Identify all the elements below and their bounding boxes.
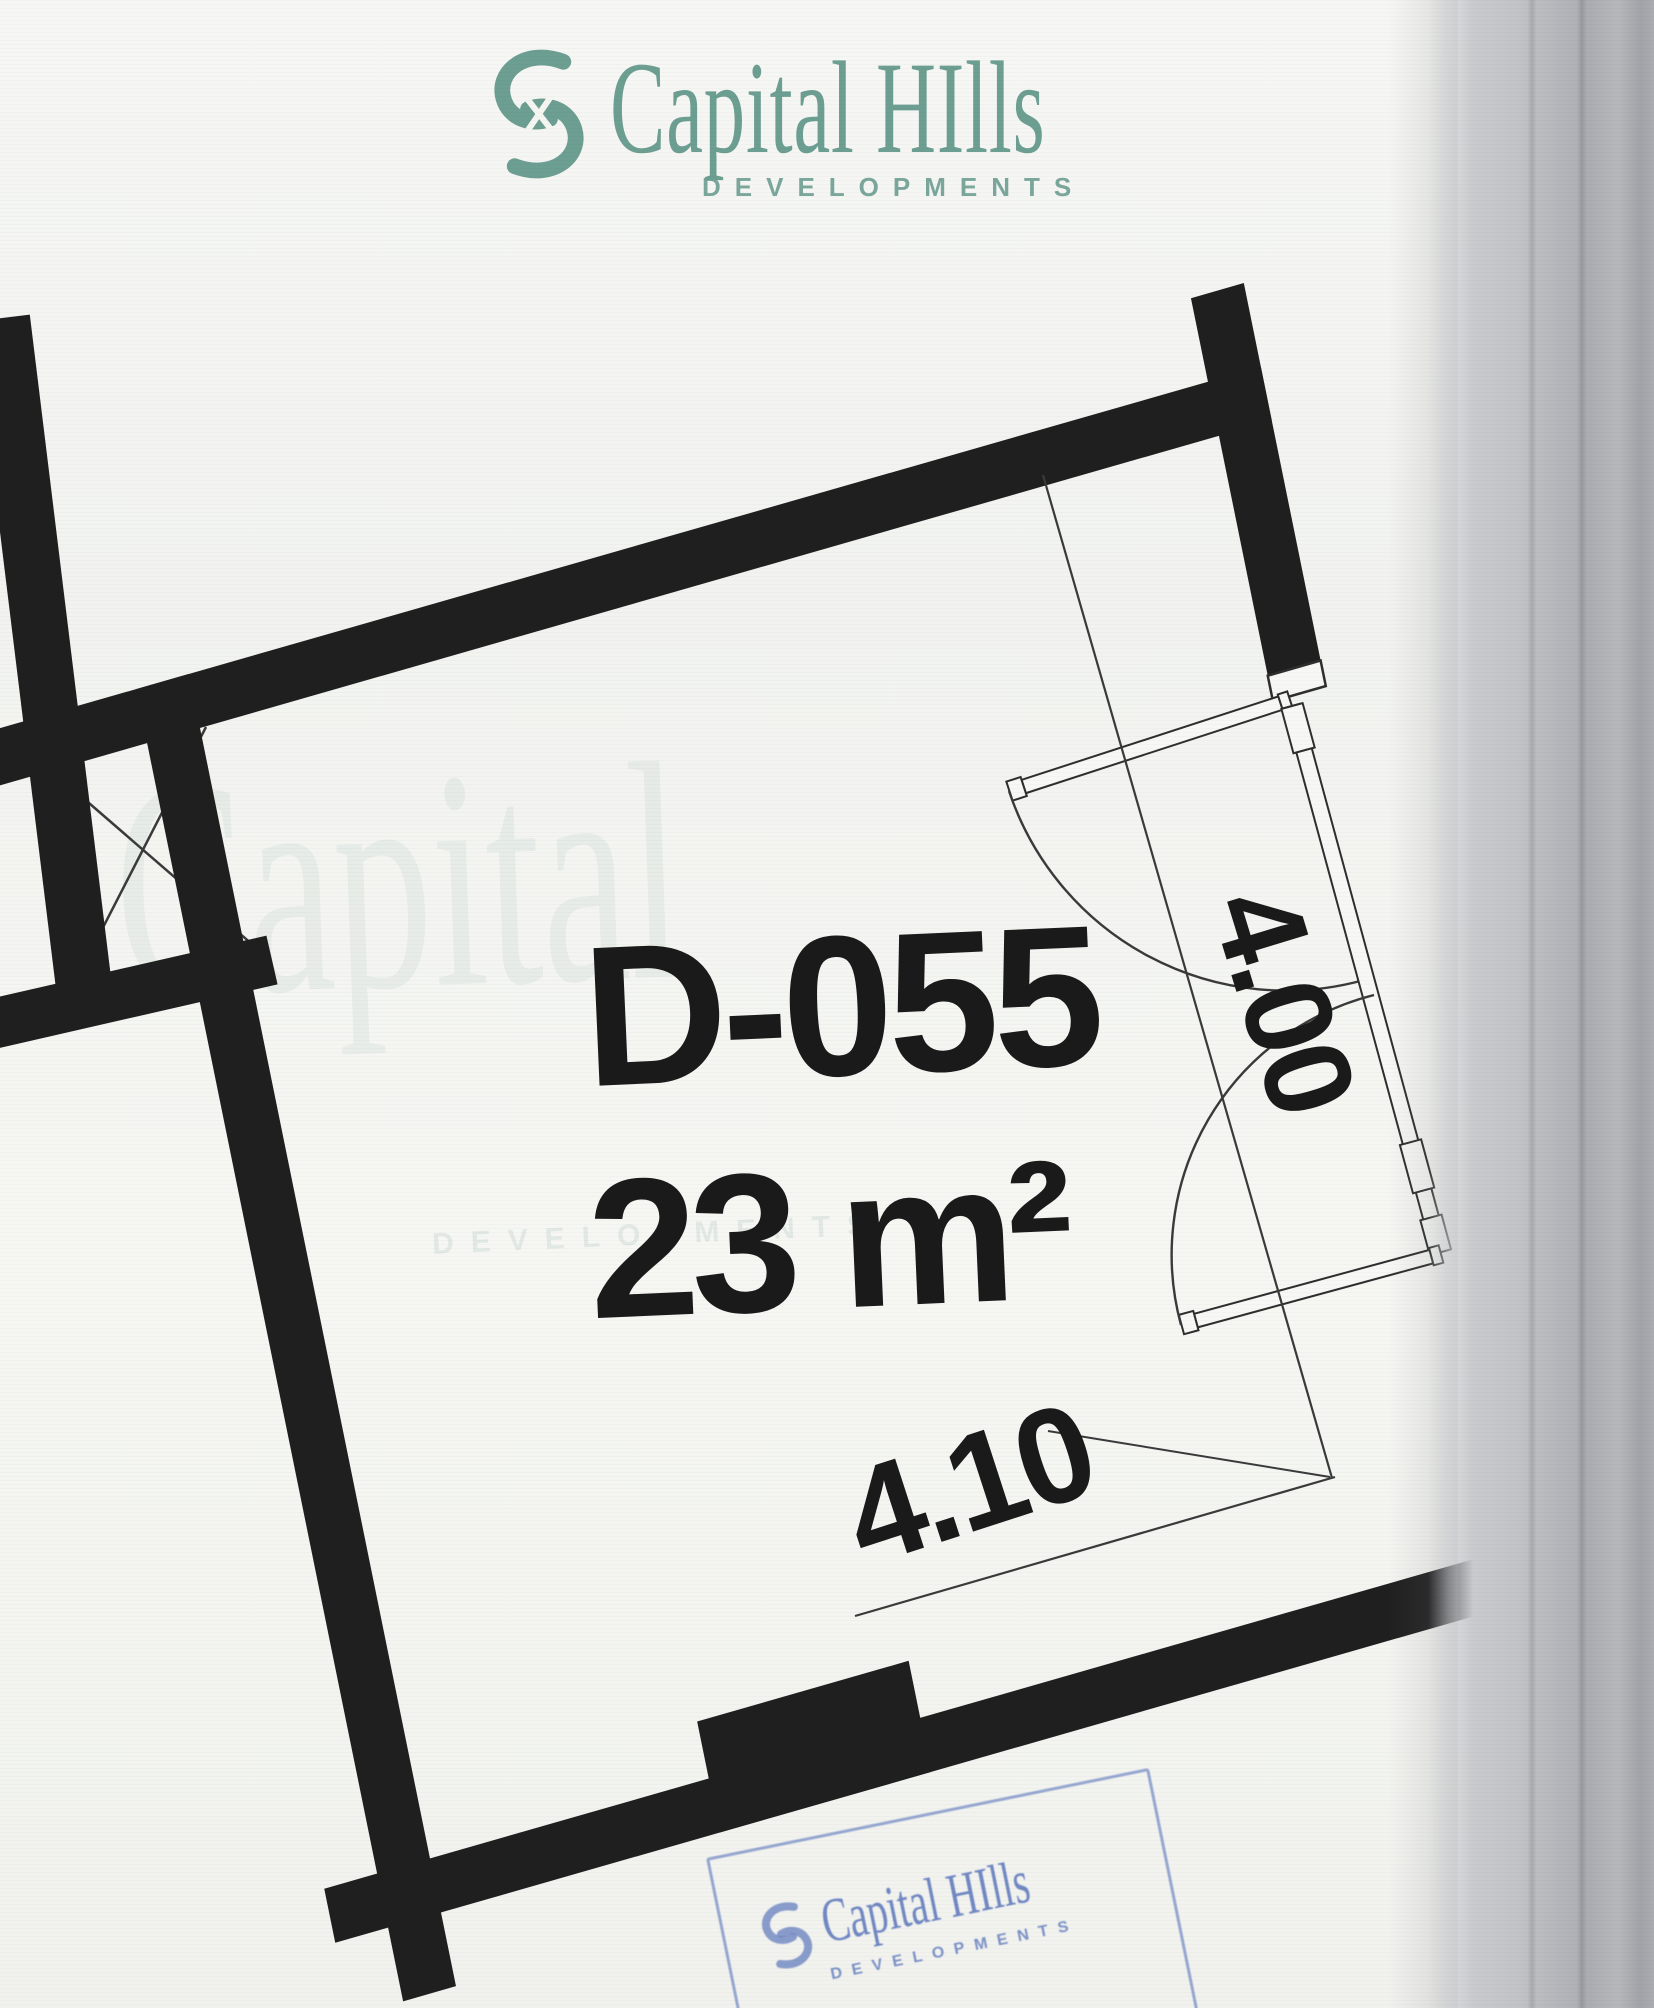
book-page-edge (1428, 0, 1654, 2008)
shaft-left-wall (2, 318, 88, 1020)
unit-area-label: 23 m² (583, 1116, 1070, 1364)
wall-left (136, 674, 456, 2001)
brand-logo-icon (478, 46, 600, 182)
wall-right-stub (1191, 283, 1321, 676)
brand-name: Capital HIlls (610, 46, 1045, 170)
door-leaf-top (1006, 690, 1293, 800)
stamp-logo-icon (749, 1895, 824, 1976)
brand-logo: Capital HIlls DEVELOPMENTS (478, 46, 1301, 203)
wall-bottom-jog (697, 1661, 931, 1833)
unit-number-label: D-055 (578, 881, 1102, 1133)
scanned-brochure-page: Capital DEVELOPMENTS (0, 0, 1654, 2008)
